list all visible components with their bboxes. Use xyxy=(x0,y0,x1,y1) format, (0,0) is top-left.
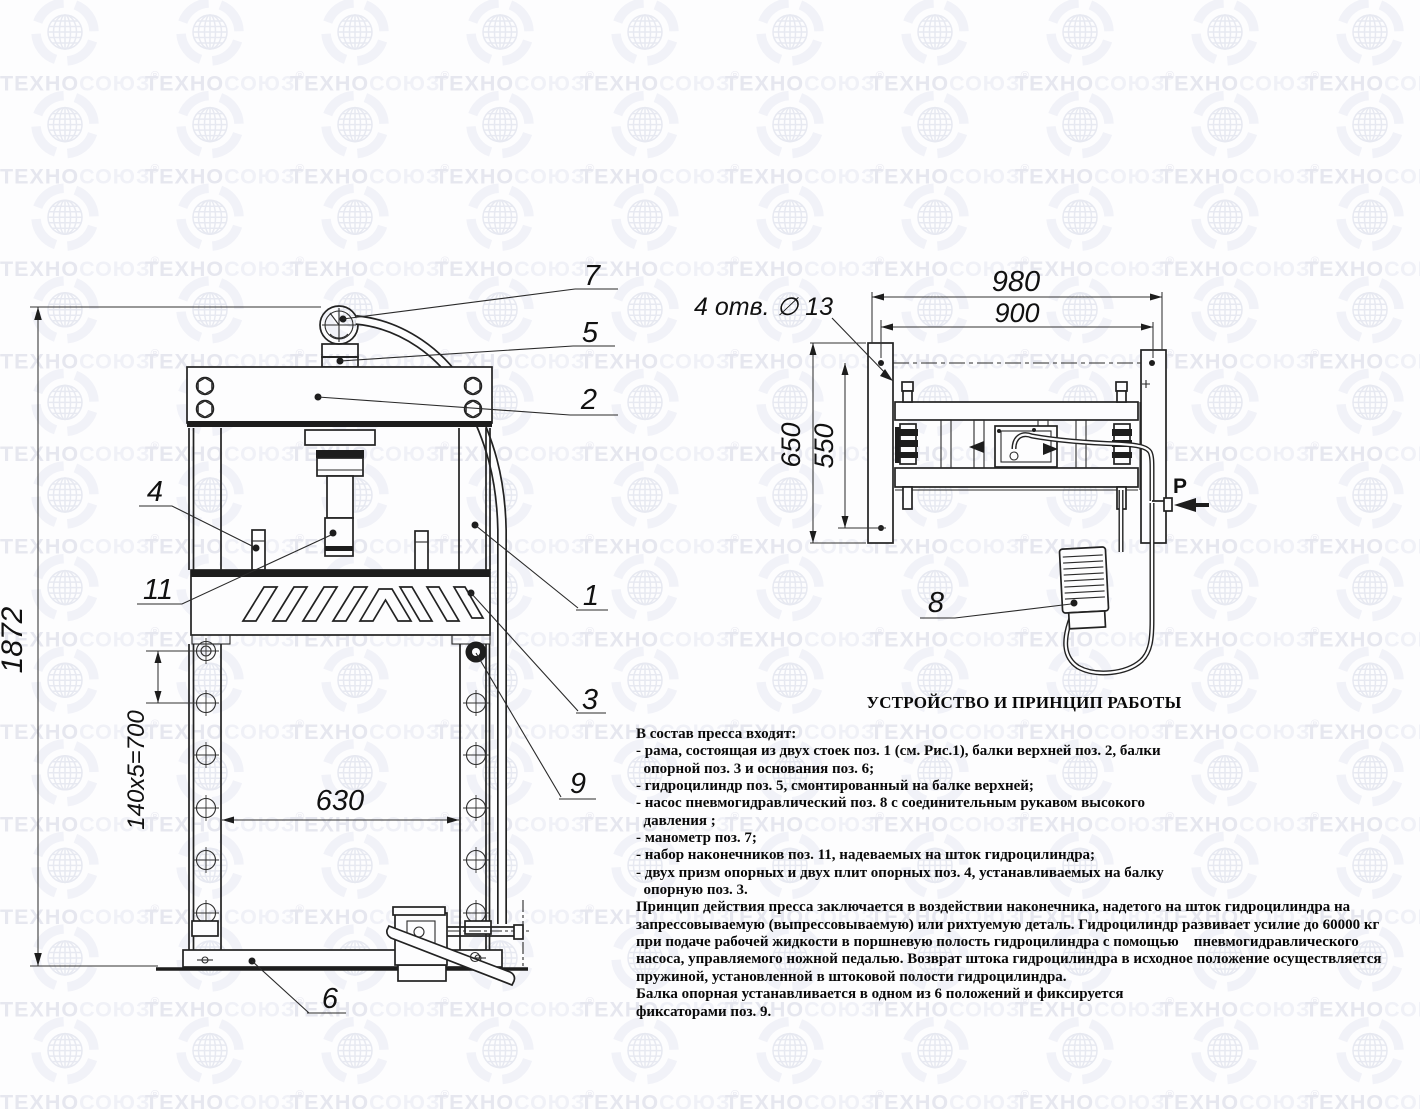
callout-8: 8 xyxy=(928,587,944,619)
description-line: Принцип действия пресса заключается в во… xyxy=(636,899,1416,916)
callout-5: 5 xyxy=(582,317,599,349)
description-line: при подаче рабочей жидкости в поршневую … xyxy=(636,934,1416,951)
description-line: - набор наконечников поз. 11, надеваемых… xyxy=(636,847,1416,864)
fixator-pin xyxy=(466,642,487,663)
callout-1: 1 xyxy=(583,580,599,612)
top-view xyxy=(810,292,1210,673)
description-line: опорную поз. 3. xyxy=(636,882,1416,899)
dim-980-label: 980 xyxy=(992,266,1040,298)
top-beam xyxy=(187,367,492,427)
callout-6: 6 xyxy=(322,983,339,1015)
dim-1872-label: 1872 xyxy=(0,606,29,673)
dim-630-label: 630 xyxy=(316,785,364,817)
callout-11: 11 xyxy=(143,574,173,606)
description-line: опорной поз. 3 и основания поз. 6; xyxy=(636,761,1416,778)
holes-note-label: 4 отв. ∅ 13 xyxy=(694,293,833,321)
description-line: В состав пресса входят: xyxy=(636,726,1416,743)
dim-630 xyxy=(222,817,459,824)
description-line: - рама, состоящая из двух стоек поз. 1 (… xyxy=(636,743,1416,760)
description-line: - двух призм опорных и двух плит опорных… xyxy=(636,865,1416,882)
description-line: - гидроцилиндр поз. 5, смонтированный на… xyxy=(636,778,1416,795)
description-line: - насос пневмогидравлический поз. 8 с со… xyxy=(636,795,1416,812)
description-line: пружиной, установленной в штоковой полос… xyxy=(636,969,1416,986)
foot-pedal xyxy=(1059,547,1109,629)
callout-7: 7 xyxy=(584,260,602,292)
support-beam xyxy=(191,570,490,644)
description-line: давления ; xyxy=(636,813,1416,830)
callout-4: 4 xyxy=(147,476,163,508)
callout-3: 3 xyxy=(582,684,598,716)
dim-650-label: 650 xyxy=(776,422,806,467)
front-view xyxy=(30,289,618,1013)
description-line: Балка опорная устанавливается в одном из… xyxy=(636,986,1416,1003)
drawing-sheet: ТЕХНОСОЮЗ®ТЕХНОСОЮЗ®ТЕХНОСОЮЗ®ТЕХНОСОЮЗ®… xyxy=(0,0,1420,1109)
left-post-top xyxy=(868,343,893,543)
description-line: фиксаторами поз. 9. xyxy=(636,1004,1416,1021)
dim-140x5 xyxy=(146,651,198,703)
description-line: насоса, управляемого ножной педалью. Воз… xyxy=(636,951,1416,968)
dim-140x5-label: 140x5=700 xyxy=(123,710,150,830)
description-body: В состав пресса входят: - рама, состояща… xyxy=(636,726,1416,1021)
pressure-inlet-arrow xyxy=(1174,498,1209,512)
description-line: запрессовываемую (выпрессовываемую) или … xyxy=(636,917,1416,934)
position-holes xyxy=(193,638,489,926)
callout-2: 2 xyxy=(580,384,597,416)
description-line: - манометр поз. 7; xyxy=(636,830,1416,847)
dim-550-label: 550 xyxy=(809,423,839,468)
callout-9: 9 xyxy=(570,768,586,800)
description-title: УСТРОЙСТВО И ПРИНЦИП РАБОТЫ xyxy=(636,693,1412,713)
pressure-label: P xyxy=(1173,475,1187,498)
hydraulic-cylinder xyxy=(305,430,375,556)
dim-900-label: 900 xyxy=(994,298,1039,328)
